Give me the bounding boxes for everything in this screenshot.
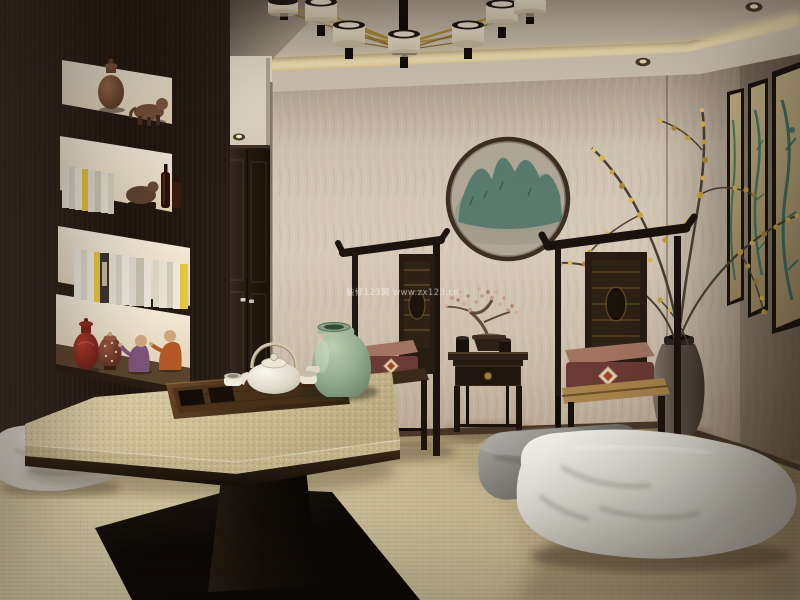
drawer-pull <box>485 373 492 380</box>
tray-compartment <box>208 386 235 403</box>
black-cup <box>456 336 469 354</box>
recessed-spotlight <box>636 58 651 67</box>
door-handle <box>249 300 254 304</box>
recessed-spotlight <box>233 134 245 141</box>
watermark: 装修123网 www.zx123.cn <box>346 287 459 299</box>
recessed-spotlight <box>746 2 763 12</box>
tea-cup <box>224 373 242 386</box>
round-wall-art <box>448 139 568 259</box>
door-handle <box>241 298 246 302</box>
tray-compartment <box>178 389 205 406</box>
shelf-books <box>62 166 114 214</box>
interior-scene <box>0 0 800 600</box>
gold-panel-artwork <box>727 62 800 334</box>
tea-room-photo: 装修123网 www.zx123.cn <box>0 0 800 600</box>
